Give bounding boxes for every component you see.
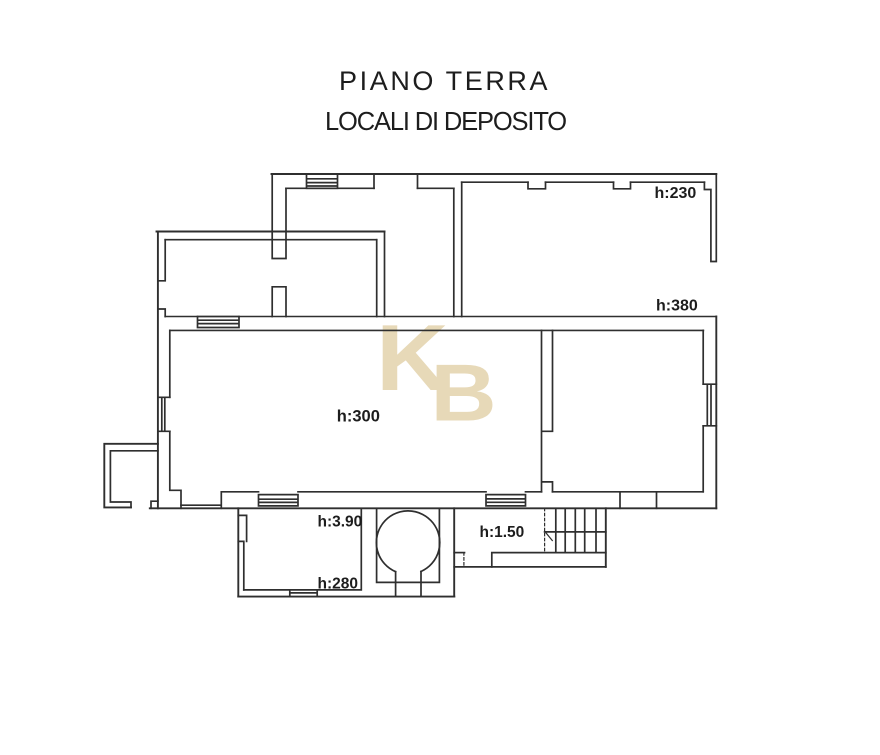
svg-text:B: B xyxy=(431,348,497,438)
svg-text:h:1.50: h:1.50 xyxy=(480,524,525,541)
svg-text:PIANO TERRA: PIANO TERRA xyxy=(339,66,550,96)
svg-text:h:380: h:380 xyxy=(656,298,698,315)
svg-text:h:3.90: h:3.90 xyxy=(318,514,363,531)
svg-text:h:300: h:300 xyxy=(337,408,380,426)
svg-text:h:230: h:230 xyxy=(655,185,697,202)
svg-text:h:280: h:280 xyxy=(318,576,359,593)
svg-text:LOCALI DI DEPOSITO: LOCALI DI DEPOSITO xyxy=(325,108,566,136)
